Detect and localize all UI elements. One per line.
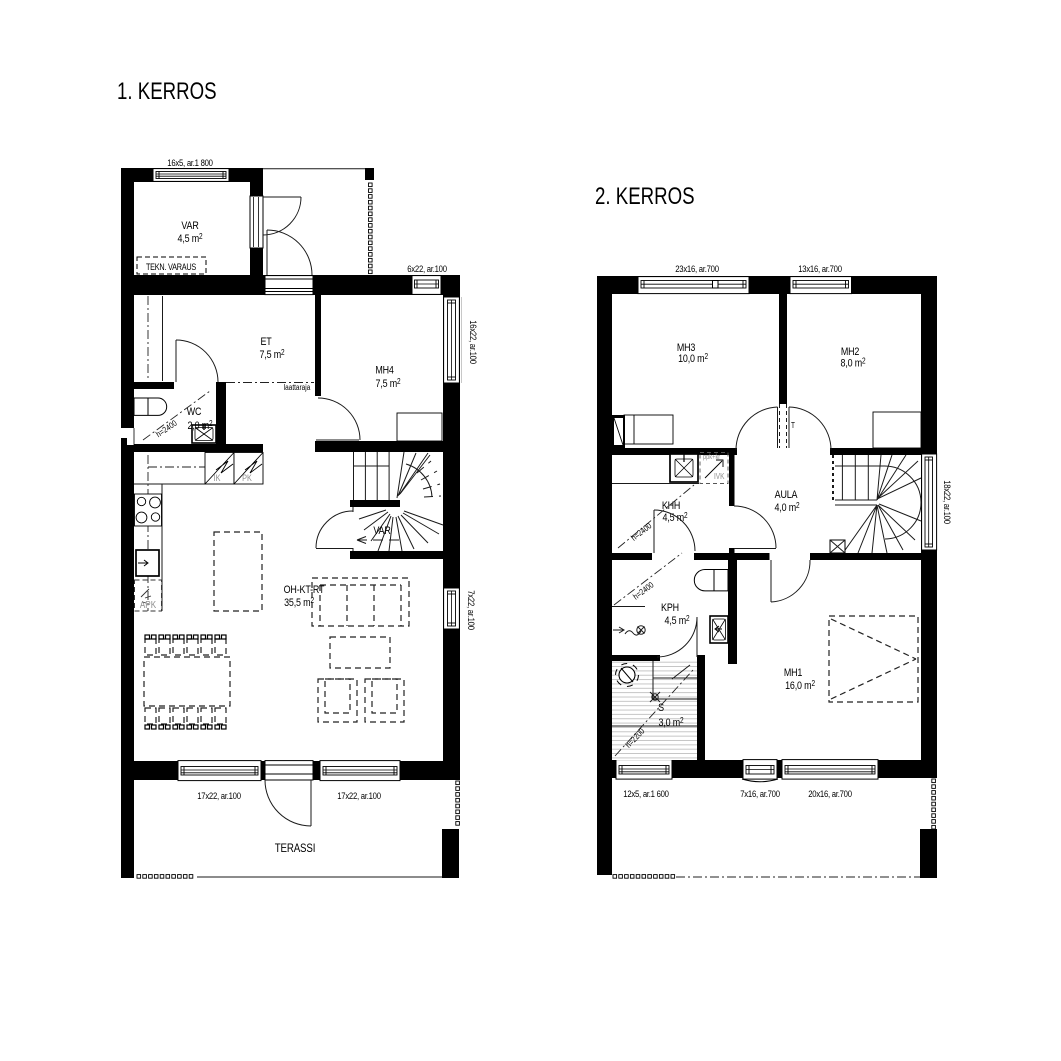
svg-text:IK: IK [214, 473, 221, 483]
svg-text:AULA: AULA [775, 489, 798, 501]
svg-text:17x22, ar.100: 17x22, ar.100 [337, 790, 381, 801]
svg-text:16x5, ar.1 800: 16x5, ar.1 800 [167, 157, 213, 168]
svg-text:KHH: KHH [662, 500, 680, 512]
svg-text:MH4: MH4 [375, 365, 394, 377]
svg-text:2. KERROS: 2. KERROS [595, 183, 695, 210]
svg-text:APK: APK [140, 599, 156, 610]
svg-text:7,5 m2: 7,5 m2 [260, 347, 285, 361]
svg-text:T: T [791, 420, 795, 430]
svg-text:4,5 m2: 4,5 m2 [665, 613, 690, 627]
svg-text:1. KERROS: 1. KERROS [117, 78, 217, 105]
svg-text:MH2: MH2 [841, 346, 860, 358]
svg-text:23x16, ar.700: 23x16, ar.700 [675, 263, 719, 274]
svg-text:KPH: KPH [661, 602, 679, 614]
svg-text:IVK: IVK [714, 471, 725, 481]
svg-text:4,0 m2: 4,0 m2 [775, 500, 800, 514]
svg-text:VAR: VAR [181, 220, 198, 232]
svg-text:7,5 m2: 7,5 m2 [376, 376, 401, 390]
svg-text:TERASSI: TERASSI [275, 842, 316, 855]
svg-text:ppk+kr: ppk+kr [703, 454, 721, 462]
svg-text:6x22, ar.100: 6x22, ar.100 [407, 263, 447, 274]
svg-text:MH1: MH1 [784, 667, 803, 679]
svg-text:TEKN. VARAUS: TEKN. VARAUS [146, 262, 197, 272]
svg-text:7x16, ar.700: 7x16, ar.700 [740, 788, 780, 799]
svg-text:2,0 m2: 2,0 m2 [188, 418, 213, 432]
svg-text:7x22, ar.100: 7x22, ar.100 [466, 590, 477, 630]
svg-text:3,0 m2: 3,0 m2 [659, 715, 684, 729]
svg-text:S: S [658, 702, 664, 714]
svg-text:16,0 m2: 16,0 m2 [785, 678, 815, 692]
svg-text:VAR: VAR [373, 525, 390, 537]
svg-text:8,0 m2: 8,0 m2 [841, 356, 866, 370]
svg-text:16x22, ar.100: 16x22, ar.100 [468, 320, 479, 364]
svg-text:20x16, ar.700: 20x16, ar.700 [808, 788, 852, 799]
svg-text:laattaraja: laattaraja [284, 382, 312, 392]
svg-text:WC: WC [187, 406, 202, 418]
svg-text:13x16, ar.700: 13x16, ar.700 [798, 263, 842, 274]
svg-text:17x22, ar.100: 17x22, ar.100 [197, 790, 241, 801]
svg-text:4,5 m2: 4,5 m2 [178, 231, 203, 245]
svg-text:ET: ET [260, 336, 271, 348]
svg-text:PK: PK [242, 473, 252, 483]
svg-text:10,0 m2: 10,0 m2 [678, 351, 708, 365]
svg-text:OH-KT-RT: OH-KT-RT [284, 584, 325, 596]
svg-text:18x22, ar.100: 18x22, ar.100 [942, 480, 953, 524]
svg-text:12x5, ar.1 600: 12x5, ar.1 600 [623, 788, 669, 799]
svg-text:35,5 m2: 35,5 m2 [284, 595, 314, 609]
